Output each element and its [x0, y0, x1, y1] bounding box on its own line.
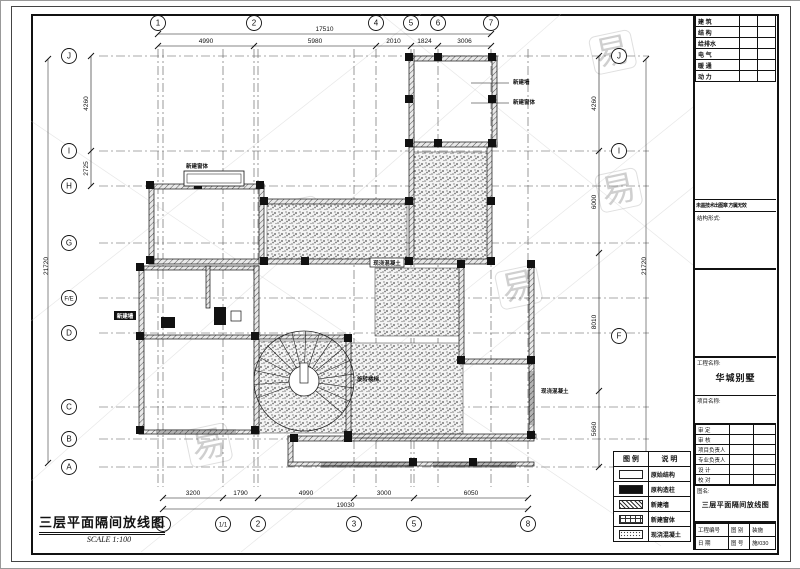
project-name-label: 工程名称:	[697, 359, 774, 367]
discipline-table: 建 筑 结 构 给排水 电 气 暖 通 动 力	[695, 15, 776, 82]
bay-window	[184, 171, 244, 186]
drawing-sheet: 易易易易易12456711/12358JIHGF/EDCBAJIF4990598…	[0, 0, 800, 569]
panel-spacer	[695, 82, 776, 199]
column-square	[527, 431, 535, 439]
legend-swatch-column	[619, 485, 643, 494]
column-square	[136, 426, 144, 434]
drawing-name-value: 三层平面隔间放线图	[697, 500, 774, 510]
column-square	[405, 197, 413, 205]
wall-segment	[409, 147, 414, 264]
wall-segment	[254, 339, 259, 434]
wall-segment	[206, 266, 210, 308]
legend-table: 图 例 说 明 原始结构 原构造柱 新建墙 新建窗体 现浇混凝土	[613, 451, 691, 542]
wall-segment	[487, 147, 492, 264]
dim-total-text: 21720	[641, 257, 648, 275]
column-square	[457, 260, 465, 268]
grid-bubble-label: 6	[436, 19, 441, 28]
plan-annotation: 新建墙	[117, 312, 134, 320]
sign-row-label: 设 计	[696, 465, 730, 475]
wall-segment	[254, 266, 259, 339]
column-square	[256, 181, 264, 189]
sign-row-label: 项目负责人	[696, 445, 730, 455]
watermark-glyph: 易	[598, 168, 639, 212]
grid-bubble-label: G	[66, 239, 72, 248]
column-square	[344, 334, 352, 342]
legend-label: 原始结构	[648, 467, 690, 482]
column-square	[405, 139, 413, 147]
grid-bubble-label: 3	[352, 520, 357, 529]
fixture	[161, 317, 175, 328]
dim-text: 1824	[417, 38, 432, 45]
dim-text: 3006	[457, 38, 472, 45]
project-name-box: 工程名称: 华城别墅	[695, 358, 776, 396]
column-square	[434, 53, 442, 61]
grid-bubble-label: J	[67, 52, 71, 61]
grid-bubble-label: I	[68, 147, 70, 156]
discipline-label: 暖 通	[696, 60, 740, 71]
drawing-title-text: 三层平面隔间放线图	[39, 512, 165, 535]
column-square	[136, 263, 144, 271]
grid-bubble-label: 4	[374, 19, 379, 28]
wall-segment	[351, 434, 536, 438]
wall-segment	[139, 339, 144, 434]
column-square	[405, 95, 413, 103]
dim-text: 8010	[591, 314, 598, 329]
grid-bubble-label: 7	[489, 19, 494, 28]
sheet-no-value: 施/030	[750, 537, 776, 550]
dim-text: 2010	[386, 38, 401, 45]
grid-bubble-label: 5	[409, 19, 414, 28]
legend-swatch-new-window	[619, 515, 643, 524]
column-square	[136, 332, 144, 340]
discipline-label: 电 气	[696, 49, 740, 60]
grid-bubble-label: D	[66, 329, 72, 338]
dim-text: 4990	[299, 490, 314, 497]
discipline-label: 给排水	[696, 38, 740, 49]
grid-bubble-label: F/E	[64, 297, 73, 303]
column-square	[405, 53, 413, 61]
fixture	[231, 311, 241, 321]
column-square	[487, 257, 495, 265]
plan-annotation: 新建窗体	[513, 98, 536, 106]
wall-segment	[139, 266, 259, 270]
date-label: 日 期	[696, 537, 729, 550]
sign-row-label: 校 对	[696, 475, 730, 485]
legend-label: 新建窗体	[648, 512, 690, 527]
column-square	[301, 257, 309, 265]
column-square	[251, 426, 259, 434]
wall-segment	[459, 359, 533, 364]
plan-annotation: 新建窗体	[186, 162, 209, 170]
dim-total-text: 19030	[336, 502, 354, 509]
grid-bubble-label: C	[66, 403, 72, 412]
wall-segment	[409, 56, 497, 61]
drawing-name-label: 图名:	[697, 487, 774, 495]
grid-bubble-label: J	[617, 52, 621, 61]
column-square	[488, 139, 496, 147]
wall-segment	[139, 335, 259, 339]
discipline-label: 动 力	[696, 71, 740, 82]
grid-bubble-label: H	[66, 182, 72, 191]
grid-bubble-label: 1/1	[219, 523, 228, 529]
sheet-type-value: 装施	[750, 524, 776, 537]
grid-bubble-label: 8	[526, 520, 531, 529]
wall-segment	[409, 142, 497, 147]
plan-annotation: 旋转楼梯	[356, 375, 380, 383]
legend-swatch-concrete	[619, 530, 643, 539]
dim-text: 5660	[591, 421, 598, 436]
dim-text: 3000	[377, 490, 392, 497]
column-square	[487, 197, 495, 205]
watermark-line	[31, 121, 661, 546]
column-square	[146, 256, 154, 264]
grid-bubble-label: I	[618, 147, 620, 156]
dim-text: 5980	[308, 38, 323, 45]
sheet-no-label: 图 号	[728, 537, 749, 550]
dim-text: 4260	[591, 96, 598, 111]
column-square	[488, 53, 496, 61]
sign-row-label: 审 核	[696, 435, 730, 445]
sign-row-label: 审 定	[696, 425, 730, 435]
grid-bubble-label: 5	[412, 520, 417, 529]
legend-swatch-new-wall	[619, 500, 643, 509]
grid-bubble-label: F	[617, 332, 622, 341]
grid-bubble-label: A	[66, 463, 72, 472]
concrete-area	[413, 152, 488, 260]
wall-segment	[259, 184, 264, 264]
plan-annotation: 新建墙	[513, 78, 530, 86]
stamp-note: 未盖技术出图章 方属无效	[695, 199, 776, 212]
dim-text: 6000	[591, 194, 598, 209]
column-square	[146, 181, 154, 189]
grid-bubble-label: B	[66, 435, 71, 444]
sheet-type-label: 图 别	[728, 524, 749, 537]
legend-swatch-original-structure	[619, 470, 643, 479]
dim-text: 3200	[186, 490, 201, 497]
drawing-name-box: 图名: 三层平面隔间放线图	[695, 485, 776, 523]
wall-segment	[149, 259, 264, 264]
wall-segment	[264, 199, 414, 204]
item-name-box: 项目名称:	[695, 396, 776, 424]
wall-segment	[139, 266, 144, 339]
sheet-footer-table: 工程编号 图 别 装施 日 期 图 号 施/030	[695, 523, 776, 550]
column-square	[290, 434, 298, 442]
wall-segment	[254, 335, 351, 339]
fixture	[214, 307, 226, 325]
column-square	[434, 139, 442, 147]
legend-label: 原构造柱	[648, 482, 690, 497]
concrete-area	[267, 203, 407, 260]
dim-text: 1790	[233, 490, 248, 497]
stair-landing	[300, 363, 308, 383]
legend-label: 新建墙	[648, 497, 690, 512]
discipline-label: 建 筑	[696, 16, 740, 27]
drawing-title-block: 三层平面隔间放线图 SCALE 1:100	[39, 512, 179, 544]
column-square	[488, 95, 496, 103]
dim-text: 6050	[464, 490, 479, 497]
column-square	[251, 332, 259, 340]
wall-segment	[149, 184, 154, 264]
dim-text: 4260	[83, 96, 90, 111]
sign-row-label: 专业负责人	[696, 455, 730, 465]
wall-segment	[459, 263, 464, 363]
concrete-area	[375, 268, 460, 336]
column-square	[260, 197, 268, 205]
plan-annotation: 现浇混凝土	[541, 387, 569, 395]
legend-label: 现浇混凝土	[648, 527, 690, 542]
project-no-label: 工程编号	[696, 524, 729, 537]
column-square	[527, 260, 535, 268]
column-square	[344, 434, 352, 442]
column-square	[260, 257, 268, 265]
form-type-box: 结构形式:	[695, 212, 776, 270]
blank-box	[695, 270, 776, 358]
discipline-label: 结 构	[696, 27, 740, 38]
column-square	[457, 356, 465, 364]
title-block-panel: 建 筑 结 构 给排水 电 气 暖 通 动 力 未盖技术出图章 方属无效 结构形…	[693, 15, 776, 550]
plan-annotation: 现浇混凝土	[373, 259, 401, 267]
concrete-area	[351, 343, 463, 435]
legend-header-symbol: 图 例	[614, 452, 649, 467]
dim-text: 4990	[199, 38, 214, 45]
grid-bubble-label: 2	[256, 520, 261, 529]
dim-total-text: 21720	[43, 257, 50, 275]
drawing-scale-text: SCALE 1:100	[39, 535, 179, 544]
project-name-value: 华城别墅	[697, 371, 774, 384]
signature-table: 审 定 审 核 项目负责人 专业负责人 设 计 校 对	[695, 424, 776, 485]
grid-bubble-label: 1	[156, 19, 161, 28]
dim-total-text: 17510	[315, 26, 333, 33]
column-square	[527, 356, 535, 364]
column-square	[405, 257, 413, 265]
grid-bubble-label: 2	[252, 19, 257, 28]
legend-header-desc: 说 明	[648, 452, 690, 467]
dim-text: 2725	[83, 161, 90, 176]
